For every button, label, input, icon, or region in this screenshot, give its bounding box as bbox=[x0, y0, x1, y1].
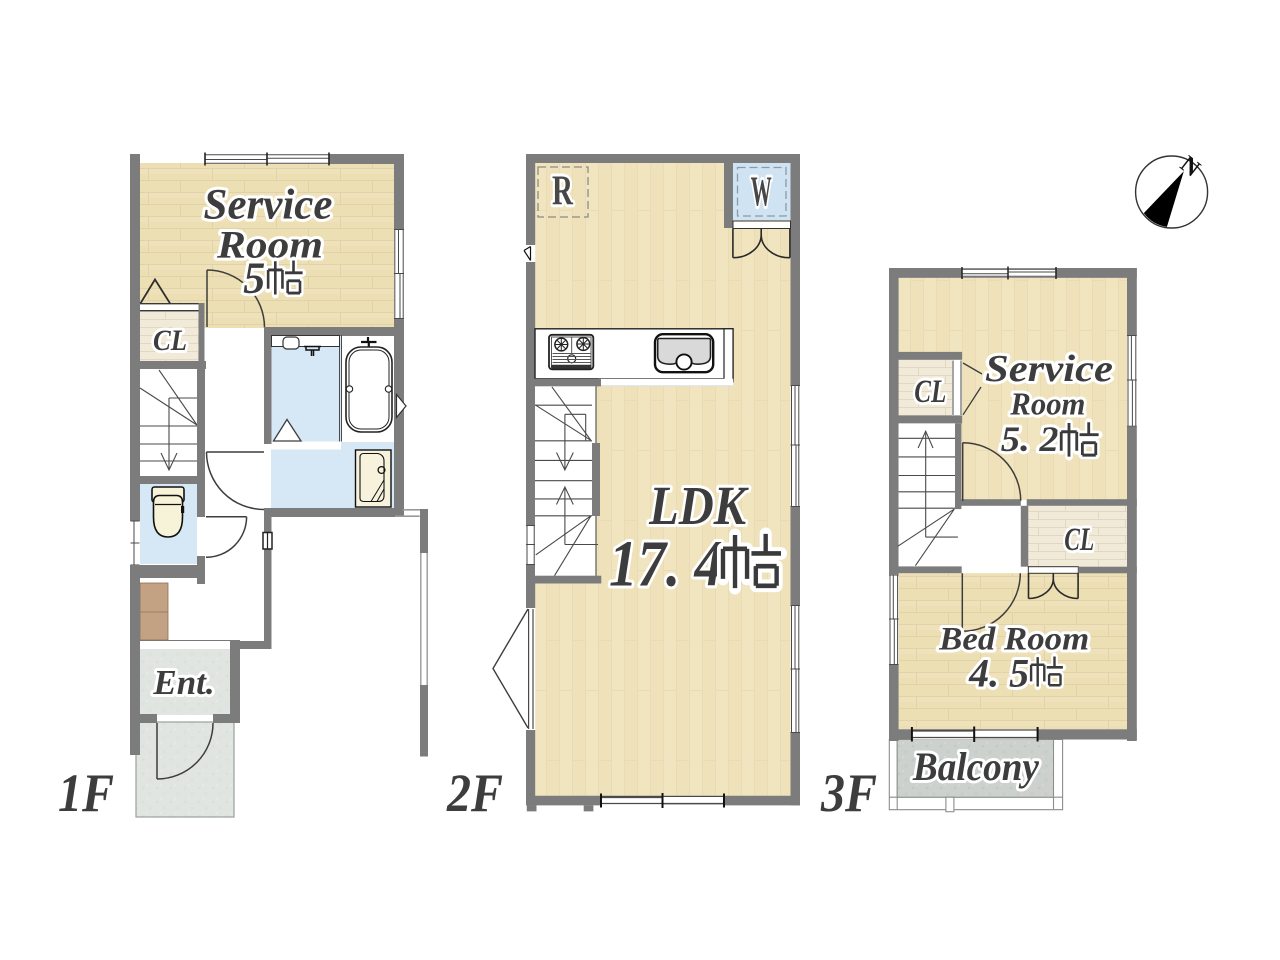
svg-text:2F: 2F bbox=[446, 763, 503, 823]
svg-text:5. 2: 5. 2 bbox=[1001, 419, 1059, 459]
svg-text:17. 4: 17. 4 bbox=[609, 528, 723, 601]
svg-text:5: 5 bbox=[243, 253, 265, 302]
svg-text:CL: CL bbox=[914, 374, 946, 410]
svg-text:W: W bbox=[751, 170, 772, 216]
svg-text:Service: Service bbox=[204, 182, 333, 229]
svg-text:Ent.: Ent. bbox=[152, 663, 214, 702]
svg-text:Room: Room bbox=[216, 223, 323, 267]
svg-text:Balcony: Balcony bbox=[912, 744, 1039, 789]
svg-text:Service: Service bbox=[985, 348, 1113, 390]
svg-text:1F: 1F bbox=[58, 763, 114, 823]
svg-text:CL: CL bbox=[1064, 522, 1094, 558]
svg-text:CL: CL bbox=[153, 324, 187, 357]
svg-text:R: R bbox=[552, 169, 573, 215]
svg-text:Room: Room bbox=[1009, 386, 1085, 422]
svg-text:4. 5: 4. 5 bbox=[968, 651, 1029, 696]
svg-text:3F: 3F bbox=[820, 763, 877, 823]
